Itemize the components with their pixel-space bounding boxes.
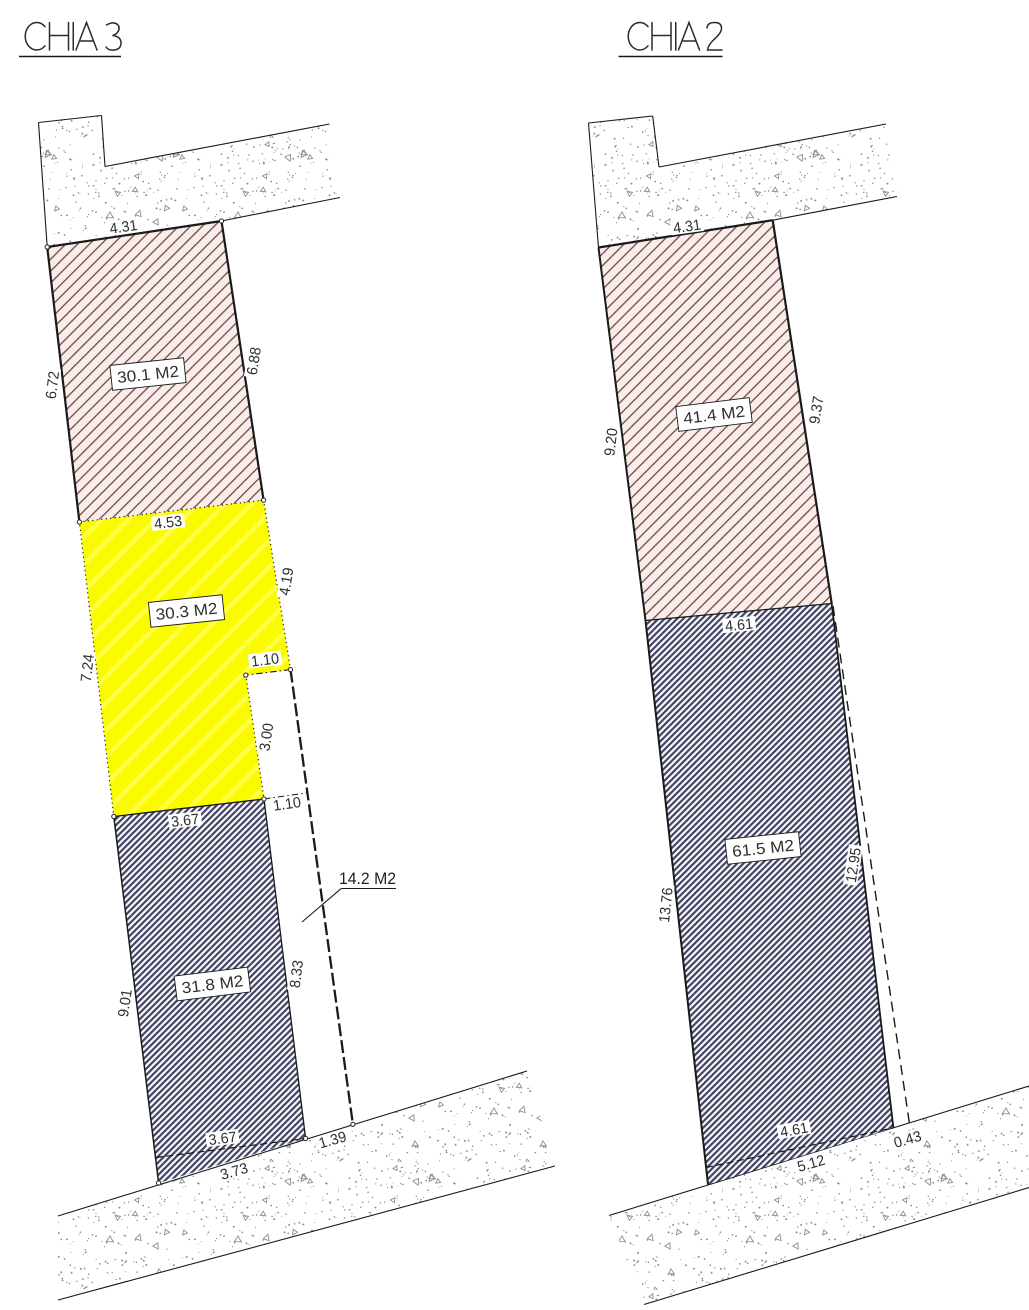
- svg-text:6.72: 6.72: [43, 370, 63, 400]
- svg-text:14.2 M2: 14.2 M2: [339, 870, 396, 888]
- svg-text:8.33: 8.33: [287, 959, 307, 989]
- svg-text:4.53: 4.53: [153, 513, 183, 533]
- svg-text:9.20: 9.20: [601, 427, 621, 457]
- svg-text:3.67: 3.67: [208, 1129, 238, 1149]
- svg-text:7.24: 7.24: [78, 653, 98, 683]
- svg-text:4.61: 4.61: [724, 616, 754, 636]
- svg-text:13.76: 13.76: [656, 887, 677, 924]
- svg-text:3.67: 3.67: [170, 811, 200, 831]
- svg-text:1.10: 1.10: [250, 650, 280, 670]
